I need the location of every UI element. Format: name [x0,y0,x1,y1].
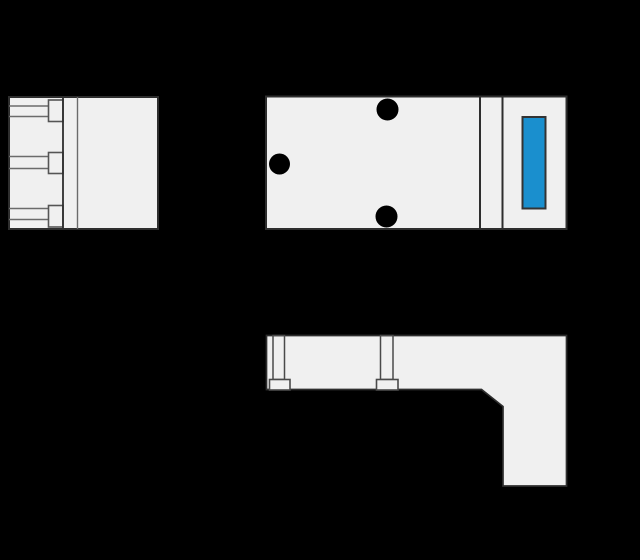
top-view-flange-strip [480,97,503,230]
screw-foot-2 [377,380,399,391]
drawing-svg [0,0,640,560]
blue-indicator-window [523,117,546,209]
terminal-tip-1 [49,100,64,122]
mounting-hole-left [269,154,290,175]
top-view-main-body [266,97,480,230]
terminal-tip-2 [49,153,64,174]
side-view-left [9,97,158,229]
front-view-l-body [267,336,567,487]
mounting-hole-top [377,99,399,121]
front-view [267,336,567,487]
top-view [266,97,567,230]
mounting-hole-bottom [376,206,398,228]
screw-foot-1 [270,380,291,391]
technical-drawing-canvas [0,0,640,560]
terminal-tip-3 [49,206,64,228]
